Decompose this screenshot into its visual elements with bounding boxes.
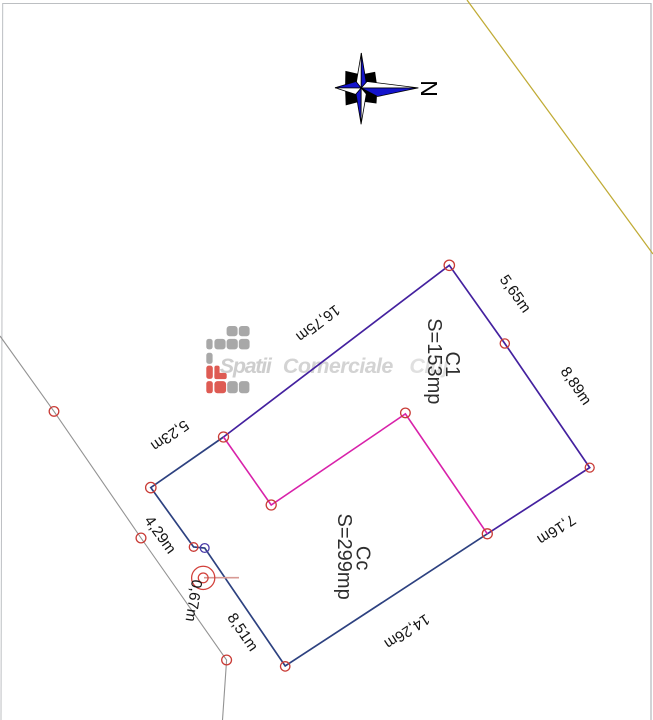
svg-text:S=153mp: S=153mp [423, 318, 445, 404]
svg-text:0,67m: 0,67m [182, 578, 205, 622]
svg-text:16,75m: 16,75m [292, 301, 343, 345]
svg-text:N: N [416, 80, 442, 97]
svg-text:Comerciale: Comerciale [283, 354, 394, 378]
svg-text:5,65m: 5,65m [496, 272, 534, 316]
svg-text:8,89m: 8,89m [557, 364, 595, 408]
svg-text:14,26m: 14,26m [381, 610, 433, 652]
svg-text:8,51m: 8,51m [223, 610, 261, 654]
svg-text:Spatii: Spatii [220, 354, 273, 378]
svg-text:7,16m: 7,16m [534, 511, 579, 548]
svg-text:S=299mp: S=299mp [333, 514, 355, 600]
svg-text:5,23m: 5,23m [147, 416, 191, 454]
